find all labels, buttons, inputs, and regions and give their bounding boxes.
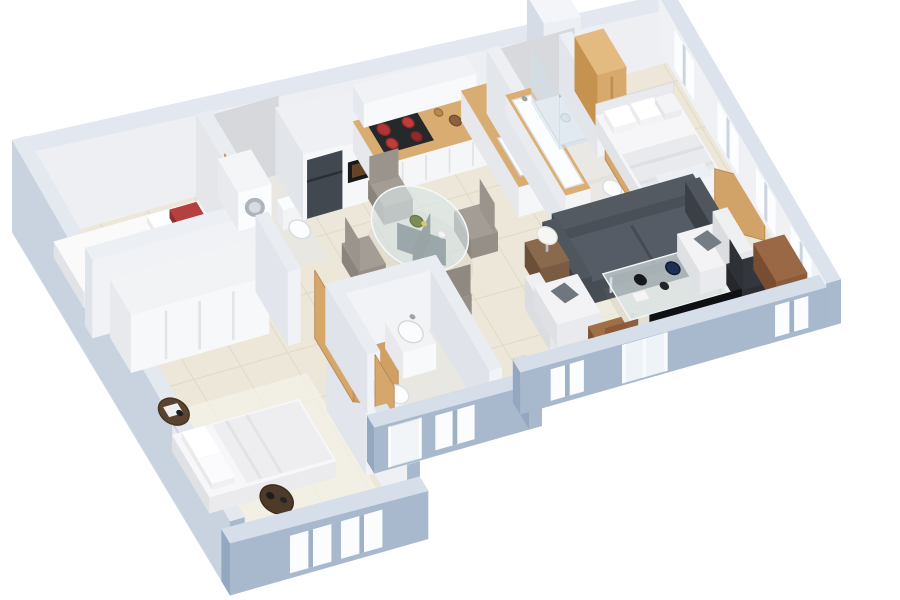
east-wall-front	[826, 279, 840, 327]
floor-plan-stage	[0, 0, 900, 600]
bathroom-small-window-post	[453, 410, 457, 445]
counter-drawer-line	[473, 142, 474, 166]
living-glass-door-frame	[664, 332, 667, 371]
living-window-post	[790, 301, 794, 333]
wardrobe-panel-line	[165, 311, 167, 360]
bedroom2-window-post	[309, 530, 313, 568]
wardrobe-panel-line	[199, 301, 201, 350]
floor-plan-render	[0, 0, 900, 600]
entry-door-frame	[419, 418, 421, 459]
living-glass-door-frame	[622, 344, 625, 383]
living-glass-door-frame	[643, 339, 646, 378]
east-window-post	[683, 44, 685, 86]
east-window-post	[727, 117, 729, 159]
counter-drawer-line	[449, 149, 450, 173]
washing-machine-door-glass	[249, 202, 261, 213]
wardrobe-panel-line	[232, 291, 234, 340]
counter-drawer-line	[426, 155, 427, 179]
bathroom-small-north-wall-side	[326, 284, 333, 356]
living-window-post	[565, 364, 569, 396]
entry-door-frame	[389, 427, 391, 468]
bedroom3-south-wall-side	[85, 248, 92, 338]
east-window-post	[765, 182, 767, 222]
fridge	[307, 151, 342, 219]
hall-wall-north-front	[288, 268, 300, 346]
bedroom2-window-post	[360, 515, 364, 553]
